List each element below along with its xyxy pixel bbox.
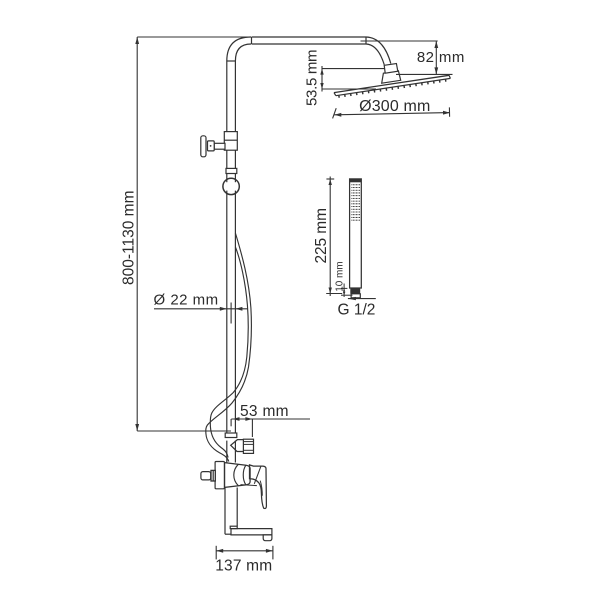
svg-text:800-1130 mm: 800-1130 mm	[121, 191, 138, 285]
svg-text:Ø 22 mm: Ø 22 mm	[154, 292, 219, 309]
svg-text:53.5 mm: 53.5 mm	[304, 50, 321, 106]
svg-text:G 1/2: G 1/2	[338, 302, 376, 319]
svg-text:82 mm: 82 mm	[417, 49, 465, 66]
svg-text:10 mm: 10 mm	[334, 261, 345, 291]
svg-text:137 mm: 137 mm	[215, 558, 272, 575]
svg-text:53 mm: 53 mm	[240, 403, 289, 420]
svg-text:Ø300 mm: Ø300 mm	[359, 98, 430, 115]
svg-text:225 mm: 225 mm	[313, 208, 330, 263]
